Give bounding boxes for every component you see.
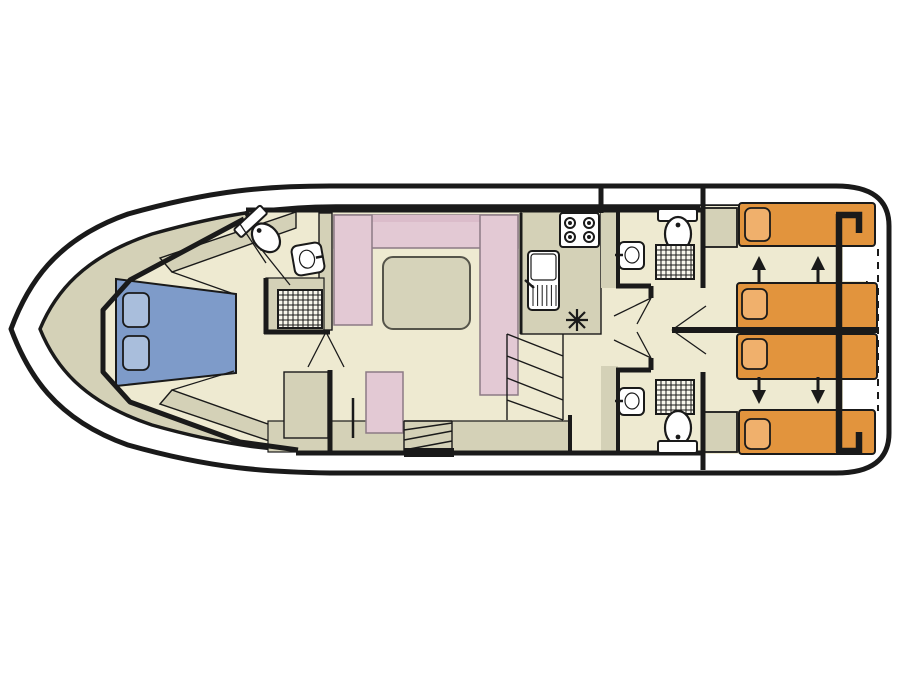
bathroom-wall-band-top xyxy=(601,212,618,288)
burner-dot xyxy=(588,222,590,224)
bathroom-wall-band-bottom xyxy=(601,366,618,452)
sink-faucet xyxy=(316,256,323,257)
stern-side-gap-top xyxy=(843,247,877,281)
sink-basin xyxy=(291,242,326,277)
side-chair-pink xyxy=(366,372,403,433)
sofa-right-bench xyxy=(480,215,518,395)
aft-wardrobe-top xyxy=(704,208,737,247)
sofa-left-bench xyxy=(334,215,372,325)
threshold-step xyxy=(404,448,454,457)
stove xyxy=(560,213,599,247)
aft-pillow-bottom-sliding xyxy=(742,339,767,369)
aft-pillow-top-sliding xyxy=(742,289,767,319)
toilet-bowl-bottom xyxy=(665,411,691,445)
bow-cabinet xyxy=(284,372,328,438)
salon-table xyxy=(383,257,470,329)
toilet-tank-bottom xyxy=(658,441,697,453)
burner-dot xyxy=(588,236,590,238)
toilet-flush-dot xyxy=(676,435,681,440)
aft-pillow-bottom-fixed xyxy=(745,419,770,449)
aft-pillow-top-fixed xyxy=(745,208,770,241)
pillow-blue-top xyxy=(123,293,149,327)
aft-wardrobe-bottom xyxy=(704,412,737,452)
burner-dot xyxy=(569,236,571,238)
sink-forward xyxy=(291,242,326,277)
floor-plan-svg xyxy=(0,0,901,676)
shower-grid-forward xyxy=(278,290,322,328)
pillow-blue-bottom xyxy=(123,336,149,370)
boat-floor-plan xyxy=(0,0,901,676)
fridge-star-icon xyxy=(566,309,588,331)
stern-side-gap-bottom xyxy=(843,379,877,413)
burner-dot xyxy=(569,222,571,224)
toilet-flush-dot xyxy=(676,223,681,228)
